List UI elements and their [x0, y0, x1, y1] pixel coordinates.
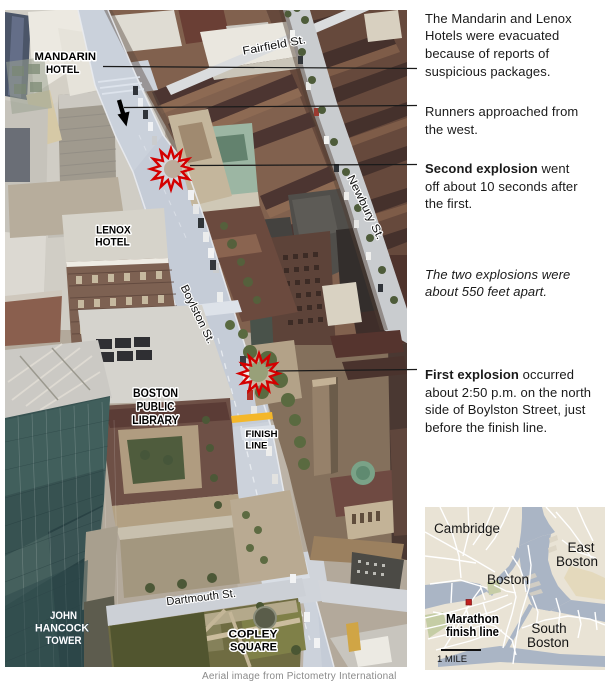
svg-text:LINE: LINE [246, 441, 268, 452]
svg-text:South: South [531, 621, 566, 636]
svg-text:Boston: Boston [487, 572, 529, 587]
svg-text:TOWER: TOWER [46, 635, 82, 647]
svg-text:FINISH: FINISH [246, 429, 278, 440]
svg-text:Marathon: Marathon [446, 612, 499, 626]
svg-text:1 MILE: 1 MILE [437, 654, 467, 665]
svg-text:LIBRARY: LIBRARY [132, 414, 179, 427]
svg-text:Cambridge: Cambridge [434, 521, 500, 536]
svg-text:SQUARE: SQUARE [230, 642, 277, 654]
svg-text:East: East [567, 540, 594, 555]
svg-text:MANDARIN: MANDARIN [35, 51, 97, 63]
svg-text:HOTEL: HOTEL [46, 64, 80, 76]
svg-text:HANCOCK: HANCOCK [35, 623, 90, 635]
svg-text:Boston: Boston [556, 554, 598, 569]
svg-text:Boston: Boston [527, 635, 569, 650]
svg-text:LENOX: LENOX [96, 225, 131, 237]
svg-text:BOSTON: BOSTON [133, 387, 178, 400]
svg-text:COPLEY: COPLEY [229, 629, 278, 641]
svg-text:JOHN: JOHN [50, 610, 77, 622]
svg-text:PUBLIC: PUBLIC [137, 401, 176, 414]
svg-text:finish line: finish line [446, 625, 499, 639]
svg-text:HOTEL: HOTEL [95, 237, 130, 249]
